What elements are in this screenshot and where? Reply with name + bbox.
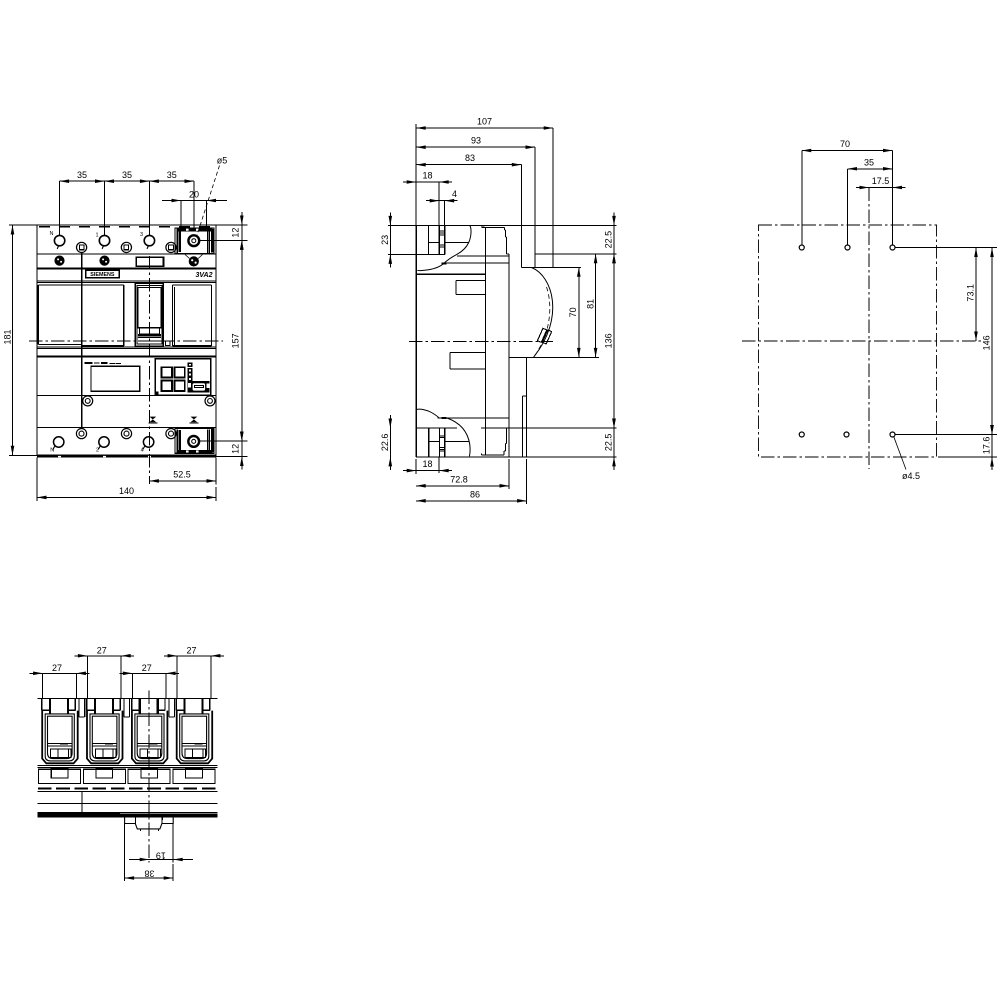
svg-text:4: 4 [141,448,144,454]
svg-text:23: 23 [380,235,390,245]
svg-text:93: 93 [471,136,481,146]
svg-text:70: 70 [840,139,850,149]
svg-text:20: 20 [189,190,199,200]
svg-text:18: 18 [422,171,432,181]
svg-text:181: 181 [3,329,13,344]
svg-text:22.5: 22.5 [604,434,614,452]
svg-text:3: 3 [140,232,143,238]
svg-text:ø4.5: ø4.5 [902,471,920,481]
svg-text:4: 4 [452,189,457,199]
svg-text:N: N [50,448,54,454]
svg-text:2: 2 [96,448,99,454]
svg-text:73.1: 73.1 [966,284,976,302]
svg-text:17.6: 17.6 [982,437,992,455]
svg-text:83: 83 [465,153,475,163]
svg-text:18: 18 [422,459,432,469]
svg-text:ø5: ø5 [217,156,228,166]
svg-text:SIEMENS: SIEMENS [90,272,115,278]
svg-text:1: 1 [95,233,98,239]
svg-text:136: 136 [604,333,614,348]
svg-text:35: 35 [864,157,874,167]
svg-text:146: 146 [982,335,992,350]
svg-text:17.5: 17.5 [872,176,890,186]
svg-text:N: N [50,231,54,237]
svg-text:107: 107 [477,117,492,127]
svg-text:19: 19 [156,850,166,860]
svg-text:27: 27 [97,645,107,655]
svg-text:81: 81 [585,299,595,309]
svg-text:3VA2: 3VA2 [196,272,213,279]
svg-text:22.5: 22.5 [604,231,614,249]
svg-text:35: 35 [122,170,132,180]
svg-text:140: 140 [119,486,134,496]
svg-text:70: 70 [568,307,578,317]
svg-text:12: 12 [230,228,240,238]
svg-text:35: 35 [77,170,87,180]
svg-text:86: 86 [470,489,480,499]
svg-text:27: 27 [186,645,196,655]
svg-text:27: 27 [142,663,152,673]
svg-text:52.5: 52.5 [173,470,191,480]
svg-text:27: 27 [52,663,62,673]
svg-text:72.8: 72.8 [450,474,468,484]
svg-text:12: 12 [231,444,241,454]
svg-text:22.6: 22.6 [380,434,390,452]
svg-text:157: 157 [230,333,240,348]
svg-text:38: 38 [144,869,154,879]
svg-text:35: 35 [167,170,177,180]
